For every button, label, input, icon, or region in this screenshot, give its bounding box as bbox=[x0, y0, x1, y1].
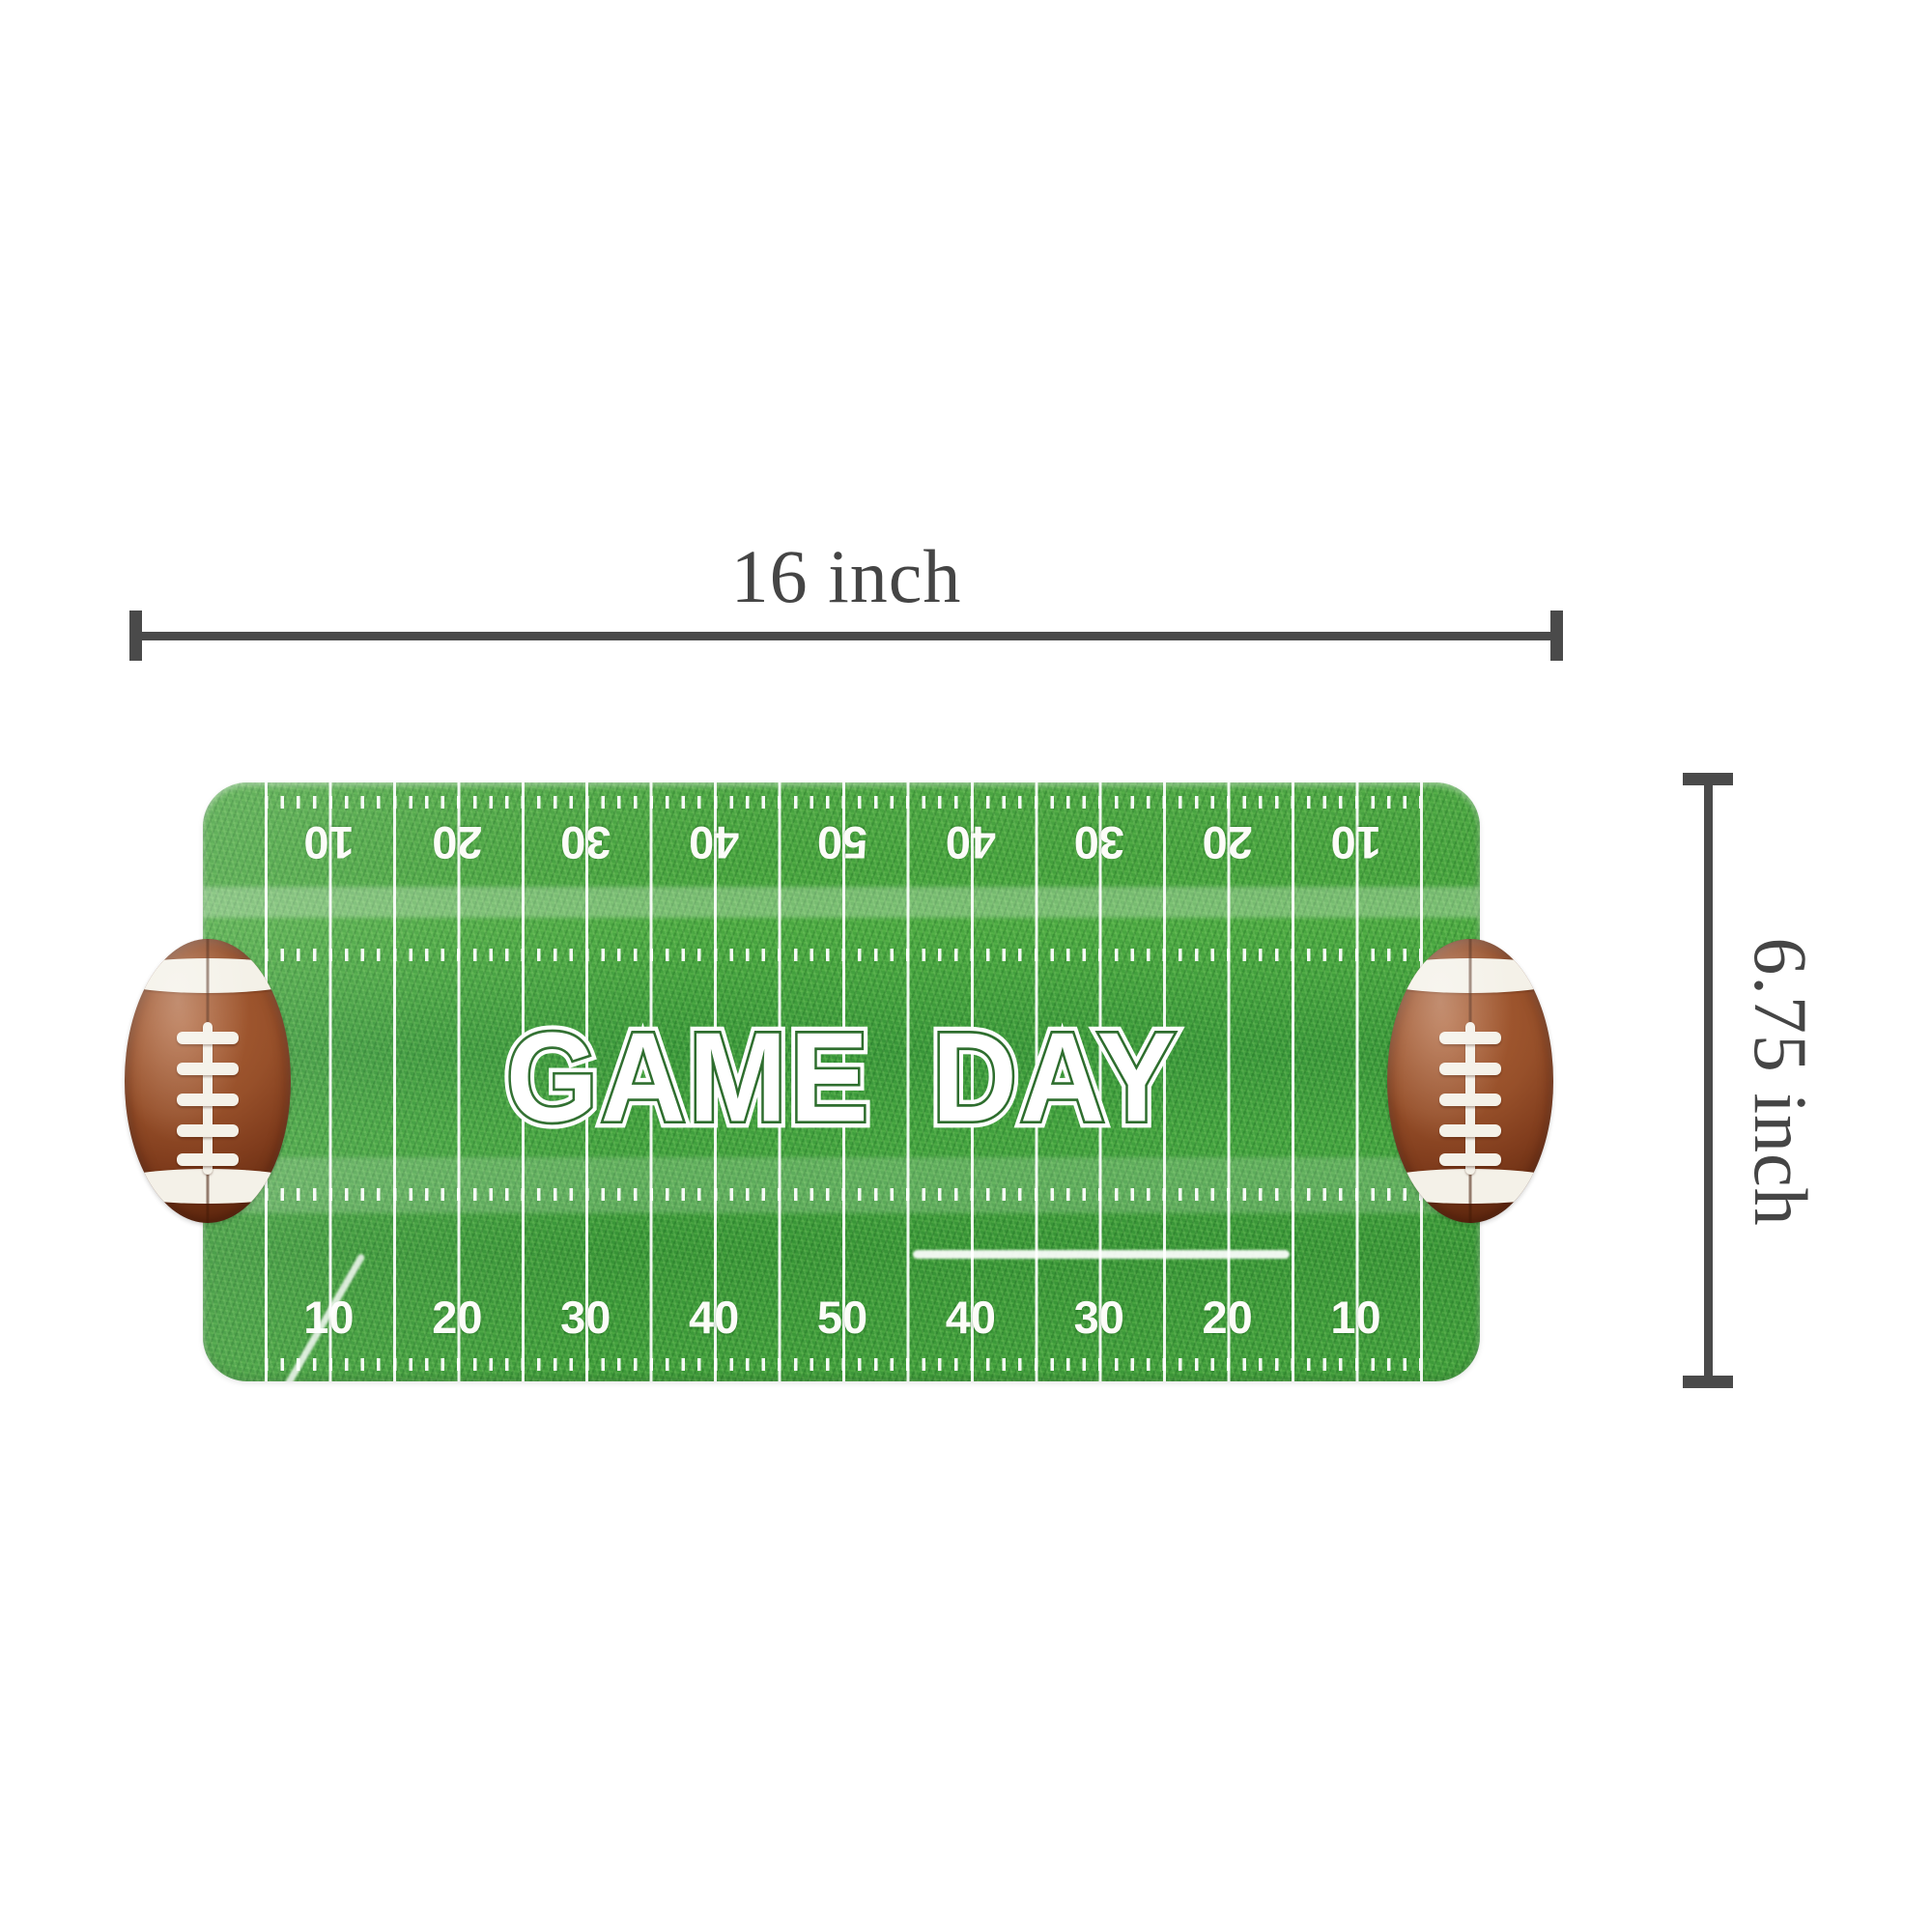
gloss-streak bbox=[913, 1250, 1290, 1259]
yard-number: 30 bbox=[522, 817, 650, 867]
yard-number: 10 bbox=[1292, 1293, 1420, 1343]
yard-number: 30 bbox=[1035, 817, 1163, 867]
yard-number: 40 bbox=[650, 817, 779, 867]
yard-number: 10 bbox=[1292, 817, 1420, 867]
yard-number: 20 bbox=[393, 1293, 522, 1343]
gloss-band-upper bbox=[203, 887, 1480, 918]
height-dimension-label: 6.75 inch bbox=[1743, 937, 1818, 1226]
gloss-band-lower bbox=[203, 1157, 1480, 1213]
hash-marks-row-top-edge bbox=[265, 796, 1420, 809]
yard-number: 30 bbox=[522, 1293, 650, 1343]
yard-number: 50 bbox=[779, 817, 907, 867]
yard-number: 50 bbox=[779, 1293, 907, 1343]
yard-number: 40 bbox=[650, 1293, 779, 1343]
game-day-title: GAME DAY GAME DAY GAME DAY bbox=[265, 1012, 1420, 1142]
yard-numbers-bottom: 10 20 30 40 50 40 30 20 10 bbox=[265, 1293, 1420, 1343]
yard-number: 20 bbox=[393, 817, 522, 867]
left-football-icon bbox=[125, 939, 291, 1223]
yard-numbers-top: 10 20 30 40 50 40 30 20 10 bbox=[265, 817, 1420, 867]
yard-number: 20 bbox=[1163, 1293, 1292, 1343]
football-glare bbox=[125, 939, 291, 1223]
width-dimension-left-cap bbox=[129, 611, 142, 661]
yard-number: 40 bbox=[906, 817, 1035, 867]
height-dimension-bottom-cap bbox=[1683, 1376, 1733, 1388]
game-day-tray: 10 20 30 40 50 40 30 20 10 GAME DAY GAME… bbox=[203, 782, 1480, 1381]
hash-marks-row-upper bbox=[265, 949, 1420, 961]
yard-number: 20 bbox=[1163, 817, 1292, 867]
width-dimension-label: 16 inch bbox=[731, 539, 962, 614]
yard-number: 10 bbox=[265, 817, 393, 867]
hash-marks-row-bottom-edge bbox=[265, 1358, 1420, 1371]
width-dimension-right-cap bbox=[1550, 611, 1563, 661]
game-day-title-core: GAME DAY bbox=[265, 1008, 1420, 1148]
yard-number: 40 bbox=[906, 1293, 1035, 1343]
right-football-icon bbox=[1387, 939, 1553, 1223]
height-dimension-line bbox=[1704, 776, 1713, 1388]
yard-number: 30 bbox=[1035, 1293, 1163, 1343]
football-glare bbox=[1387, 939, 1553, 1223]
width-dimension-line bbox=[135, 632, 1557, 640]
height-dimension-top-cap bbox=[1683, 773, 1733, 785]
